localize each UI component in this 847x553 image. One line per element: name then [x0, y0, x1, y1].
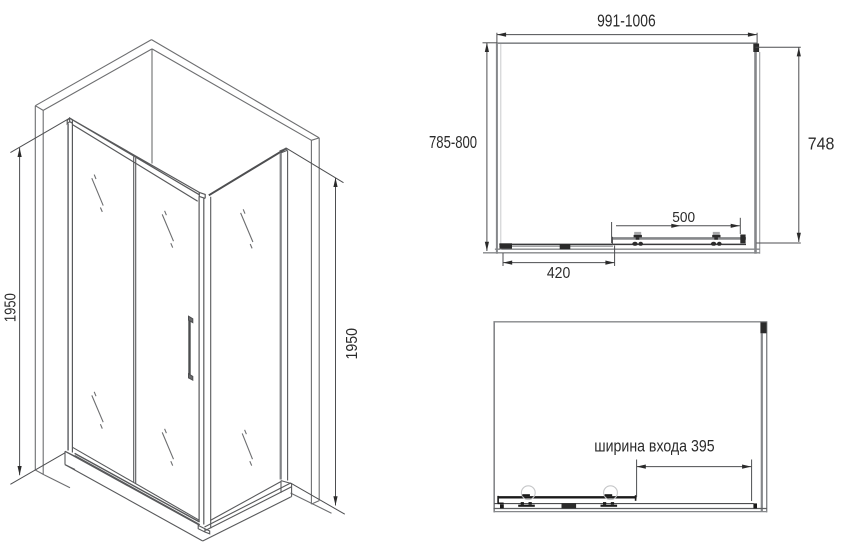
- svg-text:785-800: 785-800: [429, 132, 477, 152]
- svg-text:748: 748: [808, 134, 835, 154]
- svg-text:ширина входа 395: ширина входа 395: [594, 437, 714, 456]
- svg-text:1950: 1950: [2, 293, 19, 322]
- svg-text:500: 500: [672, 210, 695, 226]
- svg-text:1950: 1950: [344, 328, 361, 360]
- svg-text:991-1006: 991-1006: [597, 10, 656, 30]
- svg-text:420: 420: [547, 265, 571, 282]
